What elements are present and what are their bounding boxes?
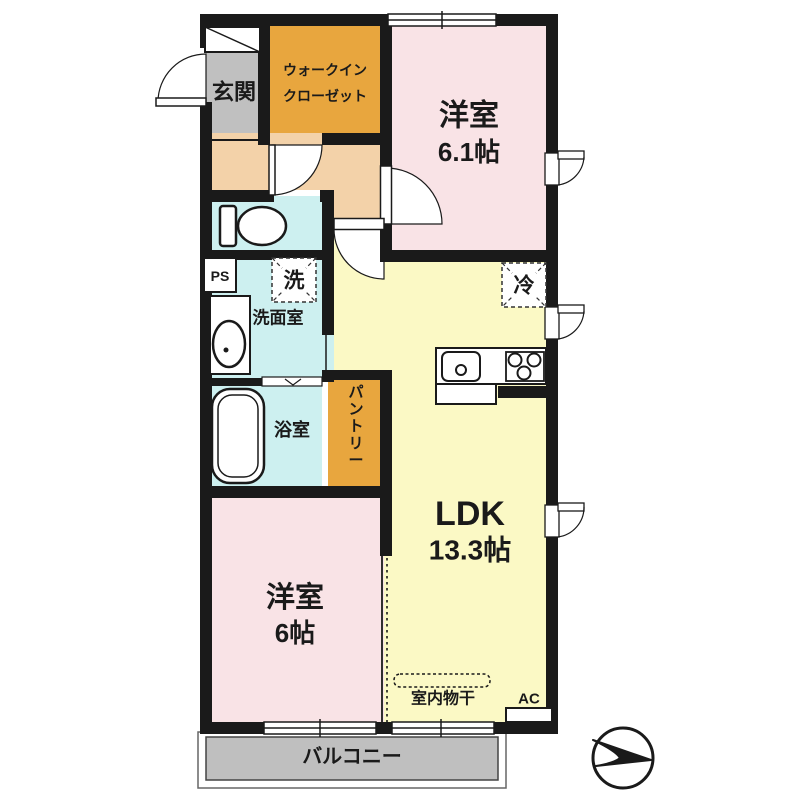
label-bathroom: 浴室 <box>274 419 310 440</box>
compass-north-icon <box>593 728 653 788</box>
label-pantry: パントリー <box>348 384 363 469</box>
entrance-door-swing <box>158 54 206 102</box>
side-window-bedroom-1 <box>545 151 584 185</box>
label-washroom: 洗面室 <box>253 308 304 328</box>
ps-box: PS <box>204 258 236 292</box>
kitchen-sink-icon <box>442 352 480 381</box>
stove-icon <box>506 352 544 381</box>
label-ldk: LDK <box>435 495 505 533</box>
label-wic-line2: クローゼット <box>283 88 367 104</box>
entrance-door-leaf <box>156 98 206 106</box>
label-bedroom-2: 洋室 <box>266 580 324 614</box>
washer-box: 洗 <box>272 258 316 302</box>
label-indoor-drying: 室内物干 <box>411 689 475 708</box>
label-ldk-size: 13.3帖 <box>429 535 512 566</box>
ac-unit <box>506 708 552 722</box>
bedroom-1-door-leaf <box>381 166 392 224</box>
floor-plan-page: PS 洗 冷 玄関 ウォークイン クローゼット 洋室 6.1帖 洗面室 浴室 パ… <box>0 0 800 800</box>
top-window <box>388 11 496 29</box>
label-ac: AC <box>518 691 540 708</box>
wic-door-leaf <box>269 145 275 195</box>
label-balcony: バルコニー <box>302 745 402 768</box>
fridge-label: 冷 <box>514 274 535 298</box>
label-bedroom-1-size: 6.1帖 <box>438 137 500 167</box>
washbasin-icon <box>210 296 250 374</box>
side-window-ldk <box>545 503 584 537</box>
balcony-window-bedroom-2 <box>264 719 376 737</box>
label-bedroom-2-size: 6帖 <box>275 618 315 648</box>
ldk-door-leaf <box>334 219 384 230</box>
floor-plan: PS 洗 冷 玄関 ウォークイン クローゼット 洋室 6.1帖 洗面室 浴室 パ… <box>0 0 800 800</box>
toilet-icon <box>220 206 286 246</box>
ps-label: PS <box>211 268 230 284</box>
shoe-cabinet-icon <box>205 27 260 52</box>
bathtub-icon <box>212 389 264 483</box>
label-wic-line1: ウォークイン <box>283 62 367 78</box>
balcony-window-ldk <box>392 719 494 737</box>
fridge-box: 冷 <box>502 263 546 307</box>
washer-label: 洗 <box>284 270 305 293</box>
room-ldk <box>384 258 546 722</box>
side-window-kitchen <box>545 305 584 339</box>
label-entrance: 玄関 <box>212 80 256 105</box>
room-walk-in-closet <box>264 20 384 140</box>
label-bedroom-1: 洋室 <box>439 99 499 133</box>
